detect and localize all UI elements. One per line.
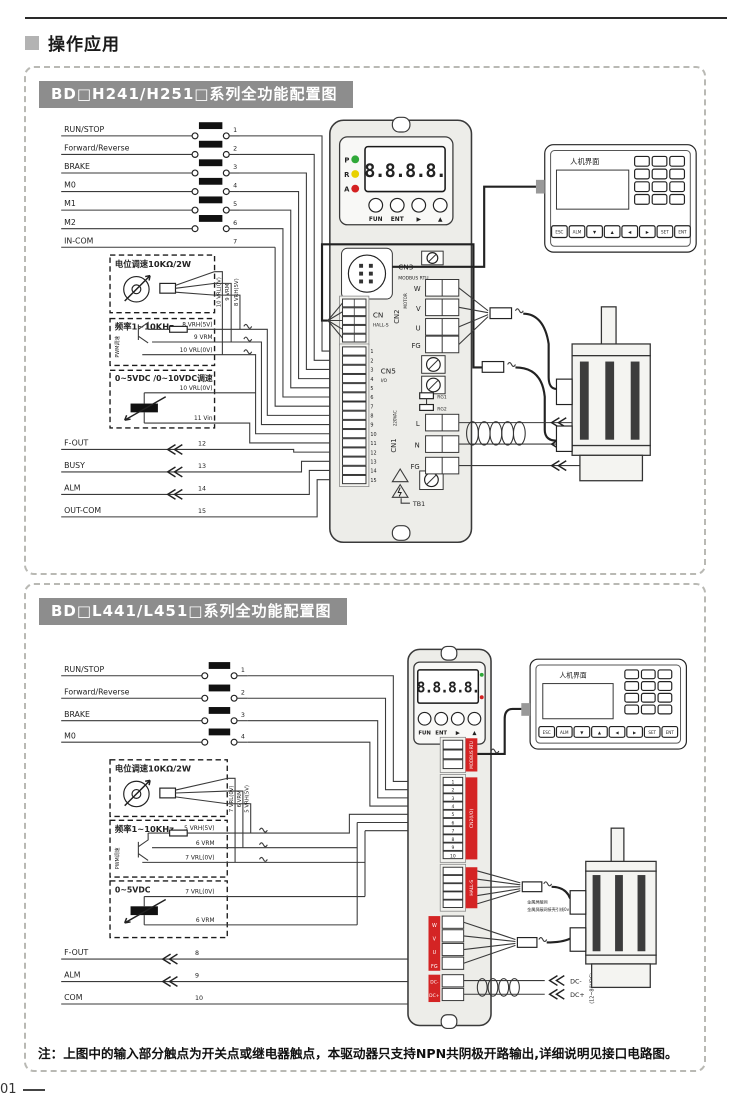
motor-hall-socket [556, 426, 572, 451]
pwm-wire-label: 8 VRH(5V) [182, 322, 212, 328]
input-pin: 3 [241, 712, 245, 719]
section-header: 操作应用 [25, 30, 120, 55]
output-row-alm: ALM 14 [61, 470, 342, 499]
cn5-label: CN5 [381, 366, 397, 375]
cn-hall-sub-label: HALL-S [373, 322, 389, 328]
output-label: OUT-COM [64, 506, 101, 515]
io-pin-number: 10 [450, 853, 456, 859]
cn2-sub-label: MOTOR [403, 293, 408, 308]
hmi-title: 人机界面 [570, 157, 599, 166]
output-pin: 8 [195, 950, 199, 957]
chevron-left-icon [550, 989, 565, 999]
output-label: F-OUT [64, 439, 88, 448]
input-label: M0 [64, 181, 76, 190]
output-row-busy: BUSY 13 [61, 461, 342, 477]
pwm-wire-label: 6 VRM [196, 841, 215, 847]
input-pin: 1 [241, 667, 245, 674]
input-label: Forward/Reverse [64, 687, 130, 696]
pwm-wire-label: 7 VRL(0V) [185, 855, 214, 861]
io-pin-number: 2 [451, 788, 454, 794]
output-label: BUSY [64, 461, 85, 470]
fun-button-label: FUN [418, 730, 431, 736]
io-pin-number: 5 [451, 812, 454, 818]
input-label: M0 [64, 731, 76, 740]
top-rule [25, 17, 727, 19]
cn5-pin-number: 14 [370, 469, 376, 475]
fun-button-label: FUN [369, 217, 383, 223]
hmi-key-label: ESC [543, 730, 551, 735]
page-number-dash [23, 1089, 45, 1091]
pot-box-title: 电位调速10KΩ/2W [115, 259, 191, 269]
diagram-h-series: RUN/STOP 1 Forward/Reverse 2 BRAKE 3 [27, 110, 703, 575]
output-pin: 12 [198, 441, 206, 448]
output-pin: 9 [195, 973, 199, 980]
vdc-wire-label: 11 Vin [194, 416, 213, 422]
pwm-wire-label: 5 VRH(5V) [184, 826, 214, 832]
ent-button-label: ENT [435, 730, 447, 736]
terminal-w-label: W [432, 923, 437, 929]
rg1-label: RG1 [437, 395, 447, 401]
tb1-label: TB1 [412, 501, 425, 508]
terminal-l-label: L [416, 420, 420, 428]
panel-l-series: BD□L441/L451□系列全功能配置图 RUN/STOP 1 Forward… [24, 583, 706, 1072]
input-label: BRAKE [64, 710, 90, 719]
rg2-label: RG2 [437, 406, 447, 412]
cn5-pin-number: 13 [370, 459, 376, 465]
hmi-key-label: ALM [573, 230, 582, 235]
hmi-port [536, 180, 545, 194]
output-row-fout: F-OUT 12 [61, 439, 342, 455]
output-label: COM [64, 993, 82, 1002]
pot-wire-label: 6 VRM [237, 790, 243, 808]
vdc-box-title: 0~5VDC [115, 886, 151, 895]
pot-wire-label: 5 VRH(5V) [245, 785, 251, 813]
output-pin: 13 [198, 463, 206, 470]
hmi-port [521, 703, 530, 716]
io-connector: 1 2 3 4 5 6 7 8 9 10 CN2(I/O) [440, 774, 477, 862]
shield-note-line2: 金属屏蔽网接壳引线0v [527, 906, 569, 912]
hmi-key-label: SET [648, 730, 656, 735]
manual-page: 操作应用 BD□H241/H251□系列全功能配置图 RUN/STOP 1 Fo… [0, 0, 750, 1111]
input-pin: 2 [241, 689, 245, 696]
pwm-wire-label: 9 VRM [194, 335, 213, 341]
hmi-screen [556, 170, 628, 209]
input-pin: 3 [233, 164, 237, 171]
display-digits: 8.8.8.8. [417, 679, 480, 696]
motor [570, 828, 656, 987]
cn5-pin-number: 9 [370, 423, 373, 429]
cn5-sub-label: I/O [381, 378, 388, 384]
page-number-text: 01 [0, 1082, 17, 1097]
hmi-key-label: ALM [560, 730, 569, 735]
modbus-bar-label: MODBUS RTU [469, 741, 474, 769]
modbus-connector: MODBUS RTU [440, 737, 477, 772]
led-yellow [351, 170, 359, 178]
dc-plus-label: DC+ [429, 993, 440, 999]
led-label-r: R [344, 171, 350, 179]
motor-power-socket [570, 928, 586, 951]
pot-wire-label: 8 VRH(5V) [234, 278, 240, 306]
cn1-sub-label: 220VAC [392, 410, 397, 426]
cn5-pin-number: 11 [370, 441, 376, 447]
vdc-box-title: 0~5VDC /0~10VDC调速 [115, 373, 213, 383]
input-pin: 6 [233, 220, 237, 227]
hmi-title: 人机界面 [559, 671, 586, 680]
cn5-pin-number: 8 [370, 414, 373, 420]
cn5-pin-number: 3 [370, 368, 373, 374]
input-pin: 4 [241, 733, 245, 740]
footnote: 注：上图中的输入部分触点为开关点或继电器触点，本驱动器只支持NPN共阴极开路输出… [38, 1043, 678, 1062]
input-row-2: Forward/Reverse 2 [61, 685, 445, 790]
vdc-wire-label: 10 VRL(0V) [180, 386, 213, 392]
terminal-n-label: N [415, 442, 420, 450]
input-switches: RUN/STOP 1 Forward/Reverse 2 BRAKE 3 [61, 122, 342, 406]
hmi-key-label: ENT [666, 730, 675, 735]
input-label: M2 [64, 218, 76, 227]
cn5-pin-number: 10 [370, 432, 376, 438]
cn1-label: CN1 [390, 438, 398, 452]
driver-unit: P R A 8.8.8.8. FUN ENT ▶ ▲ [330, 117, 472, 542]
motor-shaft [611, 828, 624, 863]
motor-hall-socket [570, 891, 586, 914]
vdc-wire-label: 7 VRL(0V) [185, 890, 214, 896]
hmi-screen [543, 684, 613, 719]
io-pin-number: 6 [451, 820, 454, 826]
io-pin-number: 8 [451, 837, 454, 843]
input-pin: 1 [233, 127, 237, 134]
terminal-w-label: W [414, 285, 421, 293]
input-pin: 5 [233, 201, 237, 208]
led-green [351, 155, 359, 163]
pot-speed-box: 电位调速10KΩ/2W 7 VRL(0V) 6 VRM 5 VRH(5V) [110, 760, 251, 863]
cn5-pin-number: 12 [370, 450, 376, 456]
driver-unit: 8.8.8.8. FUN ENT ▶ ▲ MODBUS RTU [408, 646, 491, 1028]
motor [556, 307, 650, 481]
input-row-3: BRAKE 3 [61, 707, 445, 798]
motor-power-socket [556, 379, 572, 404]
cn5-pin-number: 15 [370, 478, 376, 484]
pot-box-title: 电位调速10KΩ/2W [115, 764, 191, 774]
cn5-pin-number: 2 [370, 358, 373, 364]
led-red [480, 695, 484, 699]
input-pin: 4 [233, 183, 237, 190]
input-label: Forward/Reverse [64, 144, 130, 153]
dc-terminal-block: DC- DC+ [428, 975, 463, 1002]
output-label: F-OUT [64, 948, 88, 957]
led-green [480, 673, 484, 677]
vdc-speed-box: 0~5VDC 7 VRL(0V) 6 VRM [110, 881, 365, 938]
cable-connector [522, 882, 542, 892]
cable-connector [517, 938, 537, 948]
cable-connector [482, 362, 503, 373]
input-label: RUN/STOP [64, 665, 104, 674]
pwm-side-label: PWM调速 [114, 847, 121, 869]
up-arrow-label: ▲ [438, 217, 443, 223]
terminal-fg-label: FG [431, 964, 438, 970]
io-pin-number: 4 [451, 804, 454, 810]
input-row-5: M1 5 [61, 196, 342, 387]
cn5-pin-number: 7 [370, 404, 373, 410]
cn5-pin-number: 6 [370, 395, 373, 401]
io-bar-label: CN2(I/O) [469, 809, 475, 828]
hmi-key-label: SET [661, 230, 669, 235]
output-rows: F-OUT 12 BUSY 13 ALM 14 OUT-COM 15 [61, 439, 342, 517]
panel-h-series: BD□H241/H251□系列全功能配置图 RUN/STOP 1 Forward… [24, 66, 706, 575]
cn5-pin-number: 4 [370, 377, 373, 383]
motor-shaft [601, 307, 616, 346]
input-label: IN-COM [64, 236, 93, 245]
input-switches: RUN/STOP 1 Forward/Reverse 2 BRAKE 3 [61, 662, 445, 806]
pot-wire-label: 9 VRM [225, 283, 231, 301]
input-row-1: RUN/STOP 1 [61, 122, 342, 351]
input-label: M1 [64, 199, 76, 208]
pot-wire-label: 7 VRL(0V) [229, 785, 235, 812]
terminal-v-label: V [416, 305, 421, 313]
right-arrow-label: ▶ [416, 217, 421, 223]
dc-out-minus-label: DC- [570, 978, 582, 985]
panel-h-title: BD□H241/H251□系列全功能配置图 [39, 81, 353, 108]
input-pin: 7 [233, 238, 237, 245]
chevron-left-icon [550, 976, 565, 986]
led-label-a: A [344, 186, 350, 194]
io-pin-number: 3 [451, 796, 454, 802]
input-label: RUN/STOP [64, 125, 104, 134]
dc-out-plus-label: DC+ [570, 992, 585, 999]
pot-wire-label: 10 VRL(0V) [216, 277, 222, 307]
shield-note-line1: 金属屏蔽网 [527, 898, 547, 904]
motor-terminal-block: W V U FG [428, 916, 463, 971]
io-pin-number: 1 [451, 779, 454, 785]
diagram-l-series: RUN/STOP 1 Forward/Reverse 2 BRAKE 3 [27, 630, 703, 1040]
panel-l-title: BD□L441/L451□系列全功能配置图 [39, 598, 347, 625]
hmi-panel: 人机界面 ESC ALM ▼ ▲ ◀ ▶ SET ENT [477, 659, 686, 754]
pot-speed-box: 电位调速10KΩ/2W 10 VRL(0V) 9 VRM 8 VRH(5V) [110, 255, 240, 355]
output-pin: 14 [198, 485, 206, 492]
io-pin-number: 7 [451, 829, 454, 835]
input-label: BRAKE [64, 162, 90, 171]
cn5-pin-number: 1 [370, 349, 373, 355]
pwm-freq-box: 频率1~10KHz PWM调速 5 VRH(5V) 6 VRM 7 VRL(0V… [110, 814, 445, 925]
hmi-key-label: ESC [555, 230, 563, 235]
ent-button-label: ENT [391, 217, 404, 223]
terminal-u-label: U [416, 324, 421, 332]
display-digits: 8.8.8.8. [364, 161, 446, 182]
output-label: ALM [64, 971, 80, 980]
vdc-wire-label: 6 VRM [196, 918, 215, 924]
cn3-sub-label: MODBUS RTU [398, 275, 428, 281]
hall-bar-label: HALL-S [469, 880, 475, 896]
terminal-fg-label: FG [411, 342, 420, 350]
hall-connector: HALL-S [440, 864, 477, 911]
input-pin: 2 [233, 146, 237, 153]
cn2-label: CN2 [393, 309, 401, 323]
cable-connector [490, 308, 511, 319]
terminal-u-label: U [433, 950, 437, 956]
pwm-wire-label: 10 VRL(0V) [180, 348, 213, 354]
cn-hall-label: CN [373, 311, 384, 320]
pwm-side-label: PWM调速 [114, 336, 121, 358]
hmi-key-label: ENT [678, 230, 687, 235]
transistor-symbol [138, 833, 148, 860]
io-pin-number: 9 [451, 845, 454, 851]
section-bullet-square [25, 36, 39, 50]
section-title: 操作应用 [48, 30, 120, 55]
output-label: ALM [64, 483, 80, 492]
output-pin: 10 [195, 995, 203, 1002]
terminal-fg2-label: FG [410, 463, 419, 471]
output-pin: 15 [198, 508, 206, 515]
led-red [351, 185, 359, 193]
led-label-p: P [344, 156, 349, 164]
page-number: 01 [0, 1082, 45, 1097]
cn5-pin-number: 5 [370, 386, 373, 392]
dc-minus-label: DC- [430, 979, 439, 985]
